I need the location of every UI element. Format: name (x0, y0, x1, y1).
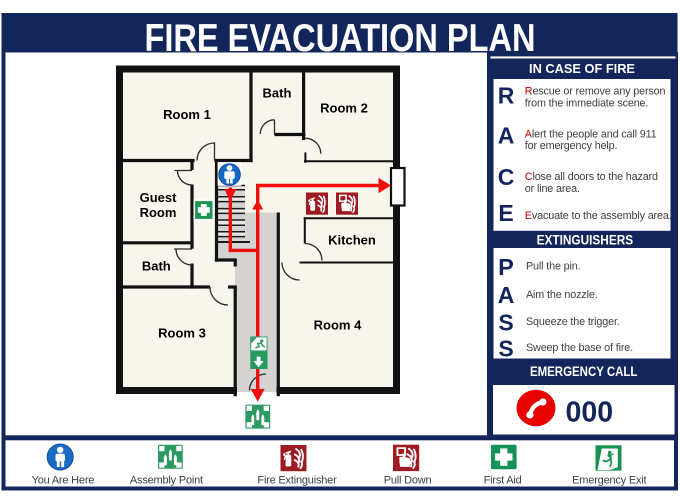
svg-text:Alert the people and call 911: Alert the people and call 911 (525, 128, 657, 140)
svg-text:P: P (498, 254, 514, 280)
svg-text:Evacuate to the assembly area.: Evacuate to the assembly area. (525, 210, 672, 222)
svg-text:Emergency Exit: Emergency Exit (572, 475, 646, 487)
svg-text:Pull Down: Pull Down (384, 475, 432, 487)
svg-text:Aim the nozzle.: Aim the nozzle. (526, 289, 598, 301)
svg-text:Room 4: Room 4 (314, 318, 362, 333)
svg-text:Close all doors to the hazard: Close all doors to the hazard (525, 171, 658, 183)
svg-text:Sweep the base of fire.: Sweep the base of fire. (526, 342, 633, 354)
svg-text:Kitchen: Kitchen (328, 233, 376, 248)
svg-text:S: S (498, 310, 513, 336)
svg-text:Guest: Guest (140, 190, 178, 205)
svg-text:Room 3: Room 3 (158, 325, 206, 340)
svg-text:E: E (498, 200, 513, 226)
svg-text:S: S (498, 335, 513, 361)
svg-text:Bath: Bath (263, 86, 292, 101)
svg-text:EMERGENCY CALL: EMERGENCY CALL (530, 363, 638, 379)
svg-text:EXTINGUISHERS: EXTINGUISHERS (537, 232, 634, 247)
svg-text:for emergency help.: for emergency help. (525, 140, 618, 152)
svg-text:FIRE EVACUATION PLAN: FIRE EVACUATION PLAN (145, 17, 536, 60)
svg-text:from the immediate scene.: from the immediate scene. (525, 97, 649, 109)
svg-text:Room 2: Room 2 (320, 101, 368, 116)
svg-text:A: A (498, 123, 515, 149)
svg-text:C: C (498, 164, 515, 190)
svg-text:or line area.: or line area. (525, 183, 580, 195)
svg-text:Rescue or remove any person: Rescue or remove any person (525, 86, 666, 98)
svg-text:R: R (498, 82, 515, 108)
svg-text:Pull the pin.: Pull the pin. (526, 261, 581, 273)
svg-text:Room: Room (140, 205, 177, 220)
svg-text:Assembly Point: Assembly Point (130, 475, 203, 487)
svg-text:Room 1: Room 1 (163, 107, 211, 122)
svg-text:A: A (498, 282, 515, 308)
svg-text:Squeeze the trigger.: Squeeze the trigger. (526, 316, 620, 328)
svg-text:IN CASE OF FIRE: IN CASE OF FIRE (529, 61, 635, 76)
svg-text:You Are Here: You Are Here (32, 475, 95, 487)
svg-text:Fire Extinguisher: Fire Extinguisher (257, 475, 337, 487)
svg-text:Bath: Bath (142, 258, 171, 273)
svg-text:First Aid: First Aid (484, 475, 522, 487)
svg-text:000: 000 (566, 397, 614, 429)
